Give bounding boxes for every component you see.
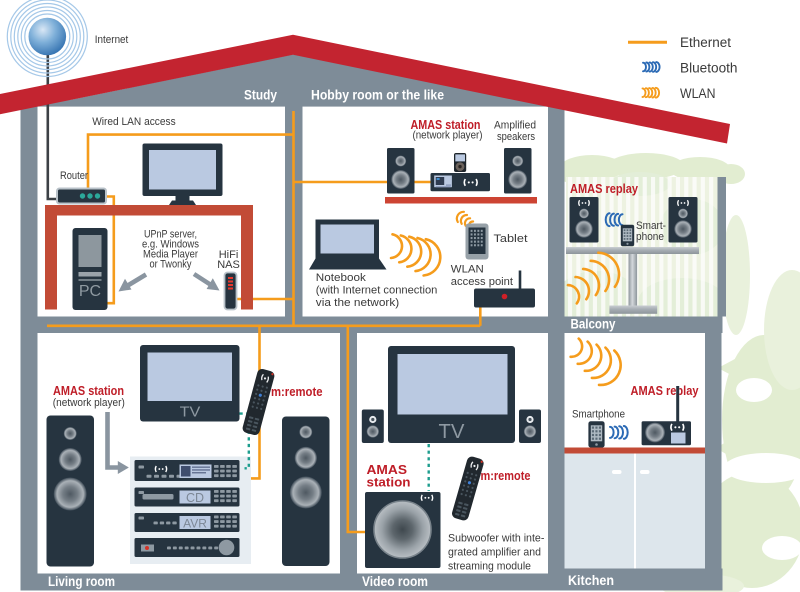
- svg-text:speakers: speakers: [497, 131, 535, 143]
- svg-text:AMAS replay: AMAS replay: [631, 383, 700, 398]
- svg-text:PC: PC: [79, 283, 101, 300]
- svg-text:Living room: Living room: [48, 574, 115, 589]
- svg-text:Video room: Video room: [362, 574, 428, 589]
- svg-text:Study: Study: [244, 88, 277, 103]
- svg-text:Balcony: Balcony: [571, 317, 616, 332]
- svg-text:m:remote: m:remote: [481, 468, 531, 483]
- svg-text:Hobby room or the like: Hobby room or the like: [311, 88, 444, 103]
- svg-text:or Twonky: or Twonky: [150, 259, 192, 271]
- svg-text:Subwoofer with inte-: Subwoofer with inte-: [448, 533, 545, 545]
- svg-text:Bluetooth: Bluetooth: [680, 61, 738, 76]
- svg-text:Notebook: Notebook: [316, 272, 366, 284]
- svg-text:Amplified: Amplified: [494, 120, 536, 132]
- svg-text:streaming module: streaming module: [448, 561, 531, 573]
- svg-text:grated amplifier and: grated amplifier and: [448, 547, 541, 559]
- svg-text:m:remote: m:remote: [271, 384, 323, 399]
- svg-text:AMAS replay: AMAS replay: [570, 181, 639, 196]
- svg-text:access point: access point: [451, 276, 514, 288]
- svg-text:(with Internet connection: (with Internet connection: [316, 285, 438, 297]
- svg-text:(network player): (network player): [413, 130, 483, 142]
- svg-text:Ethernet: Ethernet: [680, 35, 731, 50]
- svg-text:Wired LAN access: Wired LAN access: [92, 116, 176, 128]
- svg-text:WLAN: WLAN: [451, 264, 484, 276]
- svg-text:TV: TV: [180, 404, 201, 421]
- svg-text:Internet: Internet: [95, 34, 129, 46]
- svg-text:CD: CD: [186, 491, 204, 505]
- svg-text:TV: TV: [439, 421, 466, 443]
- svg-text:Kitchen: Kitchen: [568, 573, 614, 588]
- svg-text:AVR: AVR: [183, 517, 207, 531]
- svg-text:station: station: [367, 475, 411, 490]
- svg-text:Tablet: Tablet: [494, 233, 529, 245]
- svg-text:via the network): via the network): [316, 297, 400, 309]
- svg-text:phone: phone: [636, 231, 664, 243]
- svg-text:(network player): (network player): [53, 397, 125, 409]
- svg-text:NAS: NAS: [217, 259, 240, 271]
- svg-text:WLAN: WLAN: [680, 86, 716, 101]
- svg-text:Smartphone: Smartphone: [572, 409, 625, 421]
- svg-text:Router: Router: [60, 170, 88, 182]
- svg-text:AMAS station: AMAS station: [53, 383, 124, 398]
